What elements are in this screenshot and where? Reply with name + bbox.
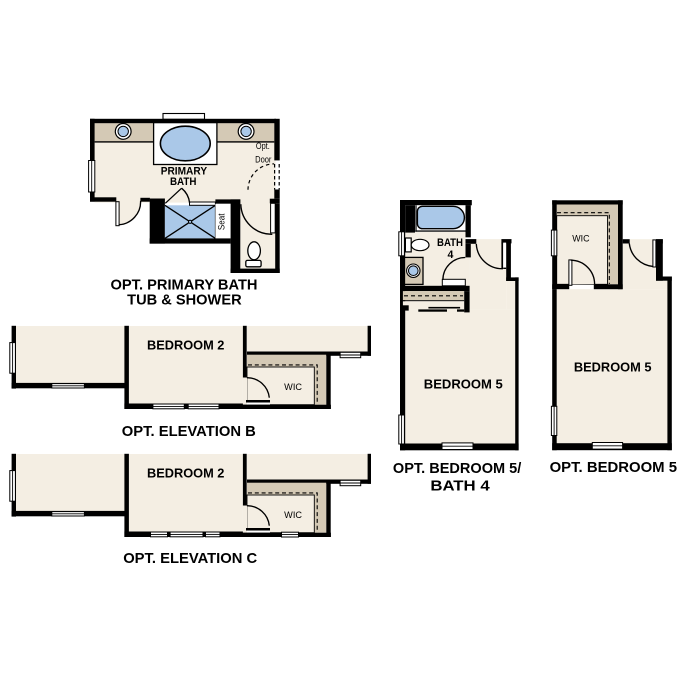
svg-text:OPT. ELEVATION C: OPT. ELEVATION C bbox=[123, 551, 257, 567]
svg-text:WIC: WIC bbox=[572, 233, 590, 243]
svg-text:Seat: Seat bbox=[217, 213, 227, 230]
svg-text:BEDROOM 5: BEDROOM 5 bbox=[424, 376, 503, 391]
svg-text:Door: Door bbox=[255, 154, 271, 164]
svg-text:OPT. BEDROOM 5/: OPT. BEDROOM 5/ bbox=[393, 461, 521, 477]
svg-text:WIC: WIC bbox=[284, 510, 302, 520]
svg-text:Opt.: Opt. bbox=[256, 141, 270, 151]
svg-text:OPT. PRIMARY BATH: OPT. PRIMARY BATH bbox=[111, 278, 258, 294]
svg-text:BEDROOM 2: BEDROOM 2 bbox=[147, 337, 224, 352]
svg-text:WIC: WIC bbox=[284, 382, 302, 392]
svg-text:4: 4 bbox=[447, 249, 453, 261]
svg-text:BATH: BATH bbox=[170, 176, 197, 188]
svg-text:OPT. ELEVATION B: OPT. ELEVATION B bbox=[122, 424, 256, 440]
svg-text:OPT. BEDROOM 5: OPT. BEDROOM 5 bbox=[550, 460, 677, 476]
svg-text:BEDROOM 2: BEDROOM 2 bbox=[147, 465, 224, 480]
svg-text:BEDROOM 5: BEDROOM 5 bbox=[574, 360, 652, 375]
svg-text:TUB & SHOWER: TUB & SHOWER bbox=[127, 292, 242, 308]
svg-text:BATH: BATH bbox=[437, 237, 463, 249]
svg-text:BATH 4: BATH 4 bbox=[430, 478, 490, 494]
